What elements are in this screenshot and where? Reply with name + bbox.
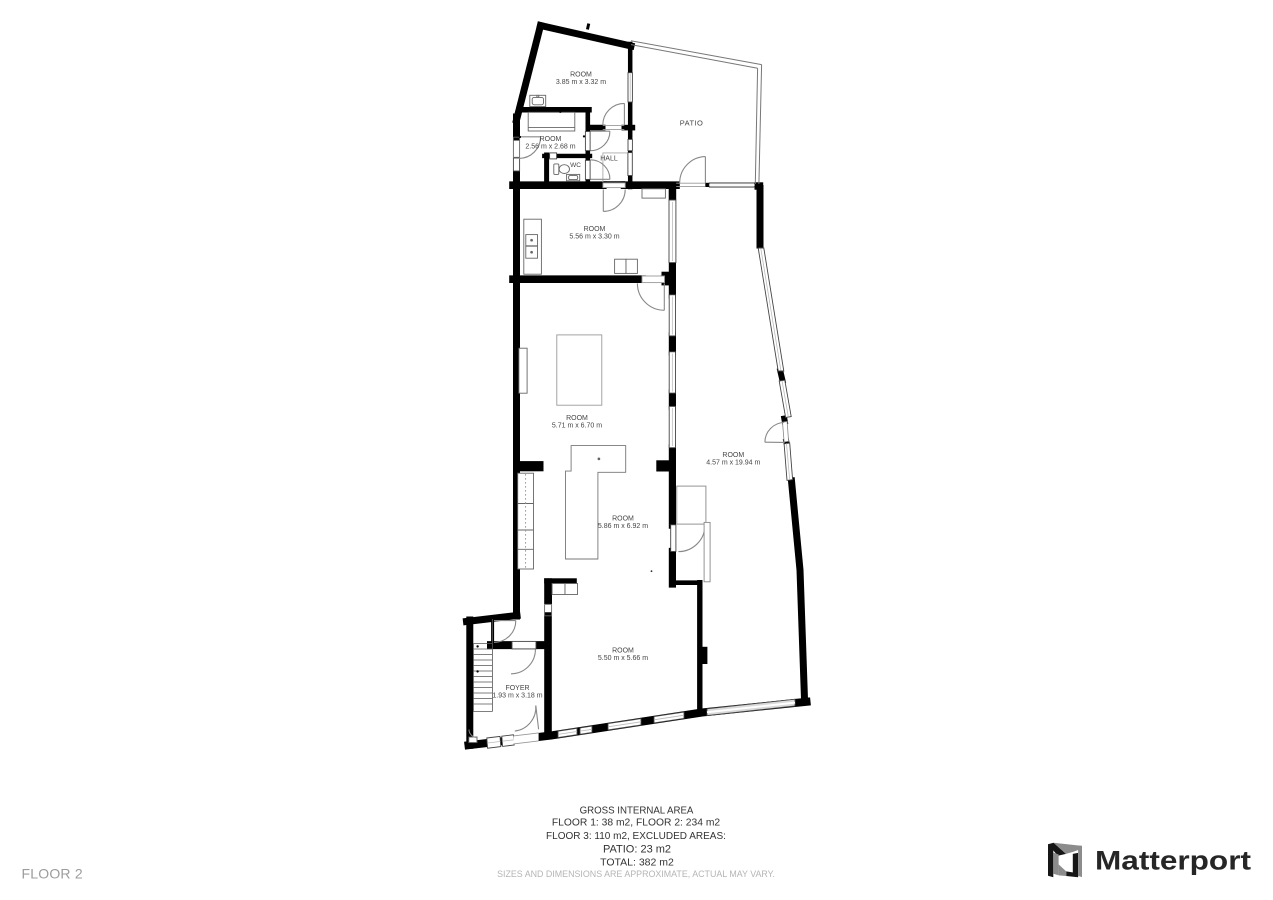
svg-text:WC: WC [570,162,581,169]
svg-text:SIZES AND DIMENSIONS ARE APPRO: SIZES AND DIMENSIONS ARE APPROXIMATE, AC… [497,869,775,879]
svg-text:ROOM: ROOM [612,516,634,523]
svg-text:PATIO: PATIO [680,119,703,128]
svg-text:ROOM: ROOM [612,648,634,655]
svg-text:5.50 m x 5.66 m: 5.50 m x 5.66 m [598,655,648,662]
svg-text:TOTAL: 382 m2: TOTAL: 382 m2 [600,856,674,868]
svg-text:GROSS INTERNAL AREA: GROSS INTERNAL AREA [580,805,694,816]
svg-text:5.86 m x 6.92 m: 5.86 m x 6.92 m [598,523,648,530]
svg-text:FLOOR 1: 38 m2, FLOOR 2: 234 m: FLOOR 1: 38 m2, FLOOR 2: 234 m2 [552,818,721,829]
svg-text:4.57 m x 19.94 m: 4.57 m x 19.94 m [706,460,760,467]
svg-text:ROOM: ROOM [584,226,606,233]
svg-text:FOYER: FOYER [505,685,529,692]
svg-text:PATIO: 23 m2: PATIO: 23 m2 [603,844,671,856]
svg-text:5.56 m x 3.30 m: 5.56 m x 3.30 m [569,234,619,241]
svg-text:1.93 m x 3.18 m: 1.93 m x 3.18 m [492,693,542,700]
svg-text:ROOM: ROOM [566,415,588,422]
svg-text:5.71 m x 6.70 m: 5.71 m x 6.70 m [552,423,602,430]
svg-text:FLOOR 2: FLOOR 2 [22,866,83,882]
svg-text:HALL: HALL [600,156,618,163]
svg-text:ROOM: ROOM [540,136,562,143]
svg-text:FLOOR 3: 110 m2, EXCLUDED AREA: FLOOR 3: 110 m2, EXCLUDED AREAS: [546,831,726,842]
svg-text:2.56 m x 2.68 m: 2.56 m x 2.68 m [525,144,575,151]
svg-text:ROOM: ROOM [722,452,744,459]
svg-text:ROOM: ROOM [570,72,592,79]
svg-text:Matterport: Matterport [1095,846,1251,876]
svg-text:3.85 m x 3.32 m: 3.85 m x 3.32 m [556,79,606,86]
